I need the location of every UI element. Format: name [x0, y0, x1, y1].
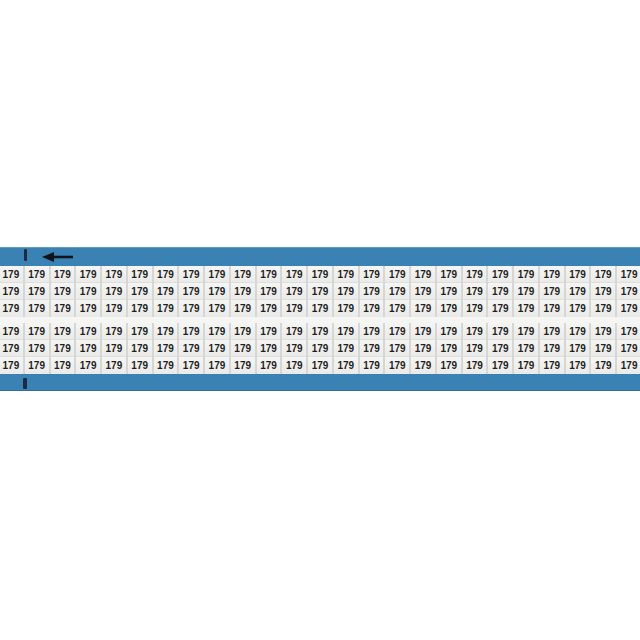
wire-marker-label: 179: [0, 323, 23, 340]
wire-marker-label: 179: [308, 357, 332, 374]
wire-marker-card: 1791791791791791791791791791791791791791…: [0, 247, 640, 391]
wire-marker-label: 179: [154, 283, 178, 300]
wire-marker-label: 179: [411, 266, 435, 283]
wire-marker-label: 179: [540, 300, 564, 317]
wire-marker-label: 179: [411, 283, 435, 300]
wire-marker-label: 179: [566, 266, 590, 283]
wire-marker-label: 179: [0, 357, 23, 374]
wire-marker-label: 179: [437, 266, 461, 283]
wire-marker-label: 179: [566, 323, 590, 340]
wire-marker-label: 179: [540, 266, 564, 283]
wire-marker-label: 179: [257, 300, 281, 317]
wire-marker-label: 179: [76, 266, 100, 283]
wire-marker-label: 179: [154, 266, 178, 283]
wire-marker-label: 179: [360, 340, 384, 357]
wire-marker-label: 179: [128, 340, 152, 357]
wire-marker-label: 179: [0, 283, 23, 300]
wire-marker-label: 179: [128, 266, 152, 283]
label-area: 1791791791791791791791791791791791791791…: [0, 266, 640, 374]
wire-marker-label: 179: [102, 357, 126, 374]
wire-marker-label: 179: [102, 300, 126, 317]
wire-marker-label: 179: [205, 300, 229, 317]
wire-marker-label: 179: [282, 283, 306, 300]
wire-marker-label: 179: [154, 357, 178, 374]
wire-marker-label: 179: [463, 283, 487, 300]
wire-marker-label: 179: [205, 340, 229, 357]
wire-marker-label: 179: [102, 283, 126, 300]
wire-marker-label: 179: [128, 283, 152, 300]
wire-marker-label: 179: [385, 266, 409, 283]
wire-marker-label: 179: [179, 266, 203, 283]
wire-marker-label: 179: [51, 323, 75, 340]
left-arrow-icon: [42, 251, 74, 263]
wire-marker-label: 179: [540, 283, 564, 300]
wire-marker-label: 179: [591, 266, 615, 283]
wire-marker-label: 179: [231, 357, 255, 374]
wire-marker-label: 179: [257, 357, 281, 374]
wire-marker-label: 179: [411, 300, 435, 317]
wire-marker-label: 179: [51, 283, 75, 300]
wire-marker-label: 179: [488, 300, 512, 317]
product-image-canvas: 1791791791791791791791791791791791791791…: [0, 0, 640, 640]
wire-marker-label: 179: [334, 283, 358, 300]
wire-marker-label: 179: [591, 300, 615, 317]
wire-marker-label: 179: [540, 357, 564, 374]
wire-marker-label: 179: [25, 340, 49, 357]
wire-marker-label: 179: [411, 340, 435, 357]
alignment-tick-bottom: [23, 378, 27, 389]
wire-marker-label: 179: [25, 266, 49, 283]
wire-marker-label: 179: [179, 323, 203, 340]
wire-marker-label: 179: [308, 340, 332, 357]
wire-marker-label: 179: [205, 266, 229, 283]
wire-marker-label: 179: [51, 357, 75, 374]
wire-marker-label: 179: [231, 283, 255, 300]
wire-marker-label: 179: [231, 266, 255, 283]
wire-marker-label: 179: [231, 340, 255, 357]
wire-marker-label: 179: [566, 340, 590, 357]
wire-marker-label: 179: [360, 283, 384, 300]
wire-marker-label: 179: [76, 323, 100, 340]
wire-marker-label: 179: [437, 283, 461, 300]
wire-marker-label: 179: [0, 266, 23, 283]
wire-marker-label: 179: [617, 340, 640, 357]
wire-marker-label: 179: [25, 283, 49, 300]
wire-marker-label: 179: [334, 300, 358, 317]
wire-marker-label: 179: [463, 300, 487, 317]
wire-marker-label: 179: [154, 300, 178, 317]
wire-marker-label: 179: [76, 300, 100, 317]
wire-marker-label: 179: [540, 340, 564, 357]
card-top-bar: [0, 247, 640, 266]
wire-marker-label: 179: [463, 357, 487, 374]
wire-marker-label: 179: [282, 340, 306, 357]
wire-marker-label: 179: [205, 323, 229, 340]
wire-marker-label: 179: [463, 266, 487, 283]
wire-marker-label: 179: [617, 323, 640, 340]
wire-marker-label: 179: [514, 340, 538, 357]
wire-marker-label: 179: [205, 357, 229, 374]
wire-marker-label: 179: [437, 357, 461, 374]
wire-marker-label: 179: [308, 266, 332, 283]
wire-marker-label: 179: [282, 357, 306, 374]
wire-marker-label: 179: [102, 340, 126, 357]
wire-marker-label: 179: [411, 357, 435, 374]
wire-marker-label: 179: [154, 323, 178, 340]
wire-marker-label: 179: [308, 323, 332, 340]
wire-marker-label: 179: [308, 283, 332, 300]
wire-marker-label: 179: [617, 357, 640, 374]
wire-marker-label: 179: [179, 357, 203, 374]
wire-marker-label: 179: [437, 300, 461, 317]
wire-marker-label: 179: [25, 323, 49, 340]
wire-marker-label: 179: [514, 323, 538, 340]
wire-marker-label: 179: [282, 300, 306, 317]
wire-marker-label: 179: [514, 300, 538, 317]
wire-marker-label: 179: [308, 300, 332, 317]
label-row-group-2: 1791791791791791791791791791791791791791…: [0, 323, 640, 374]
wire-marker-label: 179: [0, 340, 23, 357]
alignment-tick-top: [24, 249, 27, 261]
wire-marker-label: 179: [514, 357, 538, 374]
wire-marker-label: 179: [231, 300, 255, 317]
wire-marker-label: 179: [540, 323, 564, 340]
wire-marker-label: 179: [231, 323, 255, 340]
wire-marker-label: 179: [257, 266, 281, 283]
wire-marker-label: 179: [385, 340, 409, 357]
wire-marker-label: 179: [76, 340, 100, 357]
wire-marker-label: 179: [514, 266, 538, 283]
wire-marker-label: 179: [102, 323, 126, 340]
wire-marker-label: 179: [385, 357, 409, 374]
wire-marker-label: 179: [360, 300, 384, 317]
wire-marker-label: 179: [179, 340, 203, 357]
wire-marker-label: 179: [617, 266, 640, 283]
wire-marker-label: 179: [617, 283, 640, 300]
wire-marker-label: 179: [488, 340, 512, 357]
wire-marker-label: 179: [617, 300, 640, 317]
wire-marker-label: 179: [566, 283, 590, 300]
wire-marker-label: 179: [360, 357, 384, 374]
wire-marker-label: 179: [334, 323, 358, 340]
wire-marker-label: 179: [566, 357, 590, 374]
wire-marker-label: 179: [257, 283, 281, 300]
wire-marker-label: 179: [360, 323, 384, 340]
card-bottom-bar: [0, 374, 640, 391]
wire-marker-label: 179: [591, 323, 615, 340]
wire-marker-label: 179: [257, 340, 281, 357]
wire-marker-label: 179: [282, 323, 306, 340]
wire-marker-label: 179: [205, 283, 229, 300]
wire-marker-label: 179: [385, 283, 409, 300]
wire-marker-label: 179: [437, 340, 461, 357]
wire-marker-label: 179: [179, 300, 203, 317]
wire-marker-label: 179: [334, 340, 358, 357]
wire-marker-label: 179: [25, 300, 49, 317]
wire-marker-label: 179: [154, 340, 178, 357]
label-row-group-1: 1791791791791791791791791791791791791791…: [0, 266, 640, 317]
wire-marker-label: 179: [51, 300, 75, 317]
wire-marker-label: 179: [591, 340, 615, 357]
wire-marker-label: 179: [591, 357, 615, 374]
wire-marker-label: 179: [179, 283, 203, 300]
wire-marker-label: 179: [334, 357, 358, 374]
wire-marker-label: 179: [514, 283, 538, 300]
wire-marker-label: 179: [463, 323, 487, 340]
wire-marker-label: 179: [51, 340, 75, 357]
wire-marker-label: 179: [591, 283, 615, 300]
wire-marker-label: 179: [76, 357, 100, 374]
wire-marker-label: 179: [488, 283, 512, 300]
wire-marker-label: 179: [566, 300, 590, 317]
wire-marker-label: 179: [128, 300, 152, 317]
wire-marker-label: 179: [463, 340, 487, 357]
wire-marker-label: 179: [437, 323, 461, 340]
wire-marker-label: 179: [385, 300, 409, 317]
wire-marker-label: 179: [76, 283, 100, 300]
wire-marker-label: 179: [411, 323, 435, 340]
wire-marker-label: 179: [360, 266, 384, 283]
wire-marker-label: 179: [385, 323, 409, 340]
wire-marker-label: 179: [488, 323, 512, 340]
wire-marker-label: 179: [0, 300, 23, 317]
wire-marker-label: 179: [488, 357, 512, 374]
wire-marker-label: 179: [488, 266, 512, 283]
wire-marker-label: 179: [334, 266, 358, 283]
wire-marker-label: 179: [128, 323, 152, 340]
wire-marker-label: 179: [257, 323, 281, 340]
wire-marker-label: 179: [51, 266, 75, 283]
wire-marker-label: 179: [25, 357, 49, 374]
wire-marker-label: 179: [128, 357, 152, 374]
wire-marker-label: 179: [282, 266, 306, 283]
wire-marker-label: 179: [102, 266, 126, 283]
